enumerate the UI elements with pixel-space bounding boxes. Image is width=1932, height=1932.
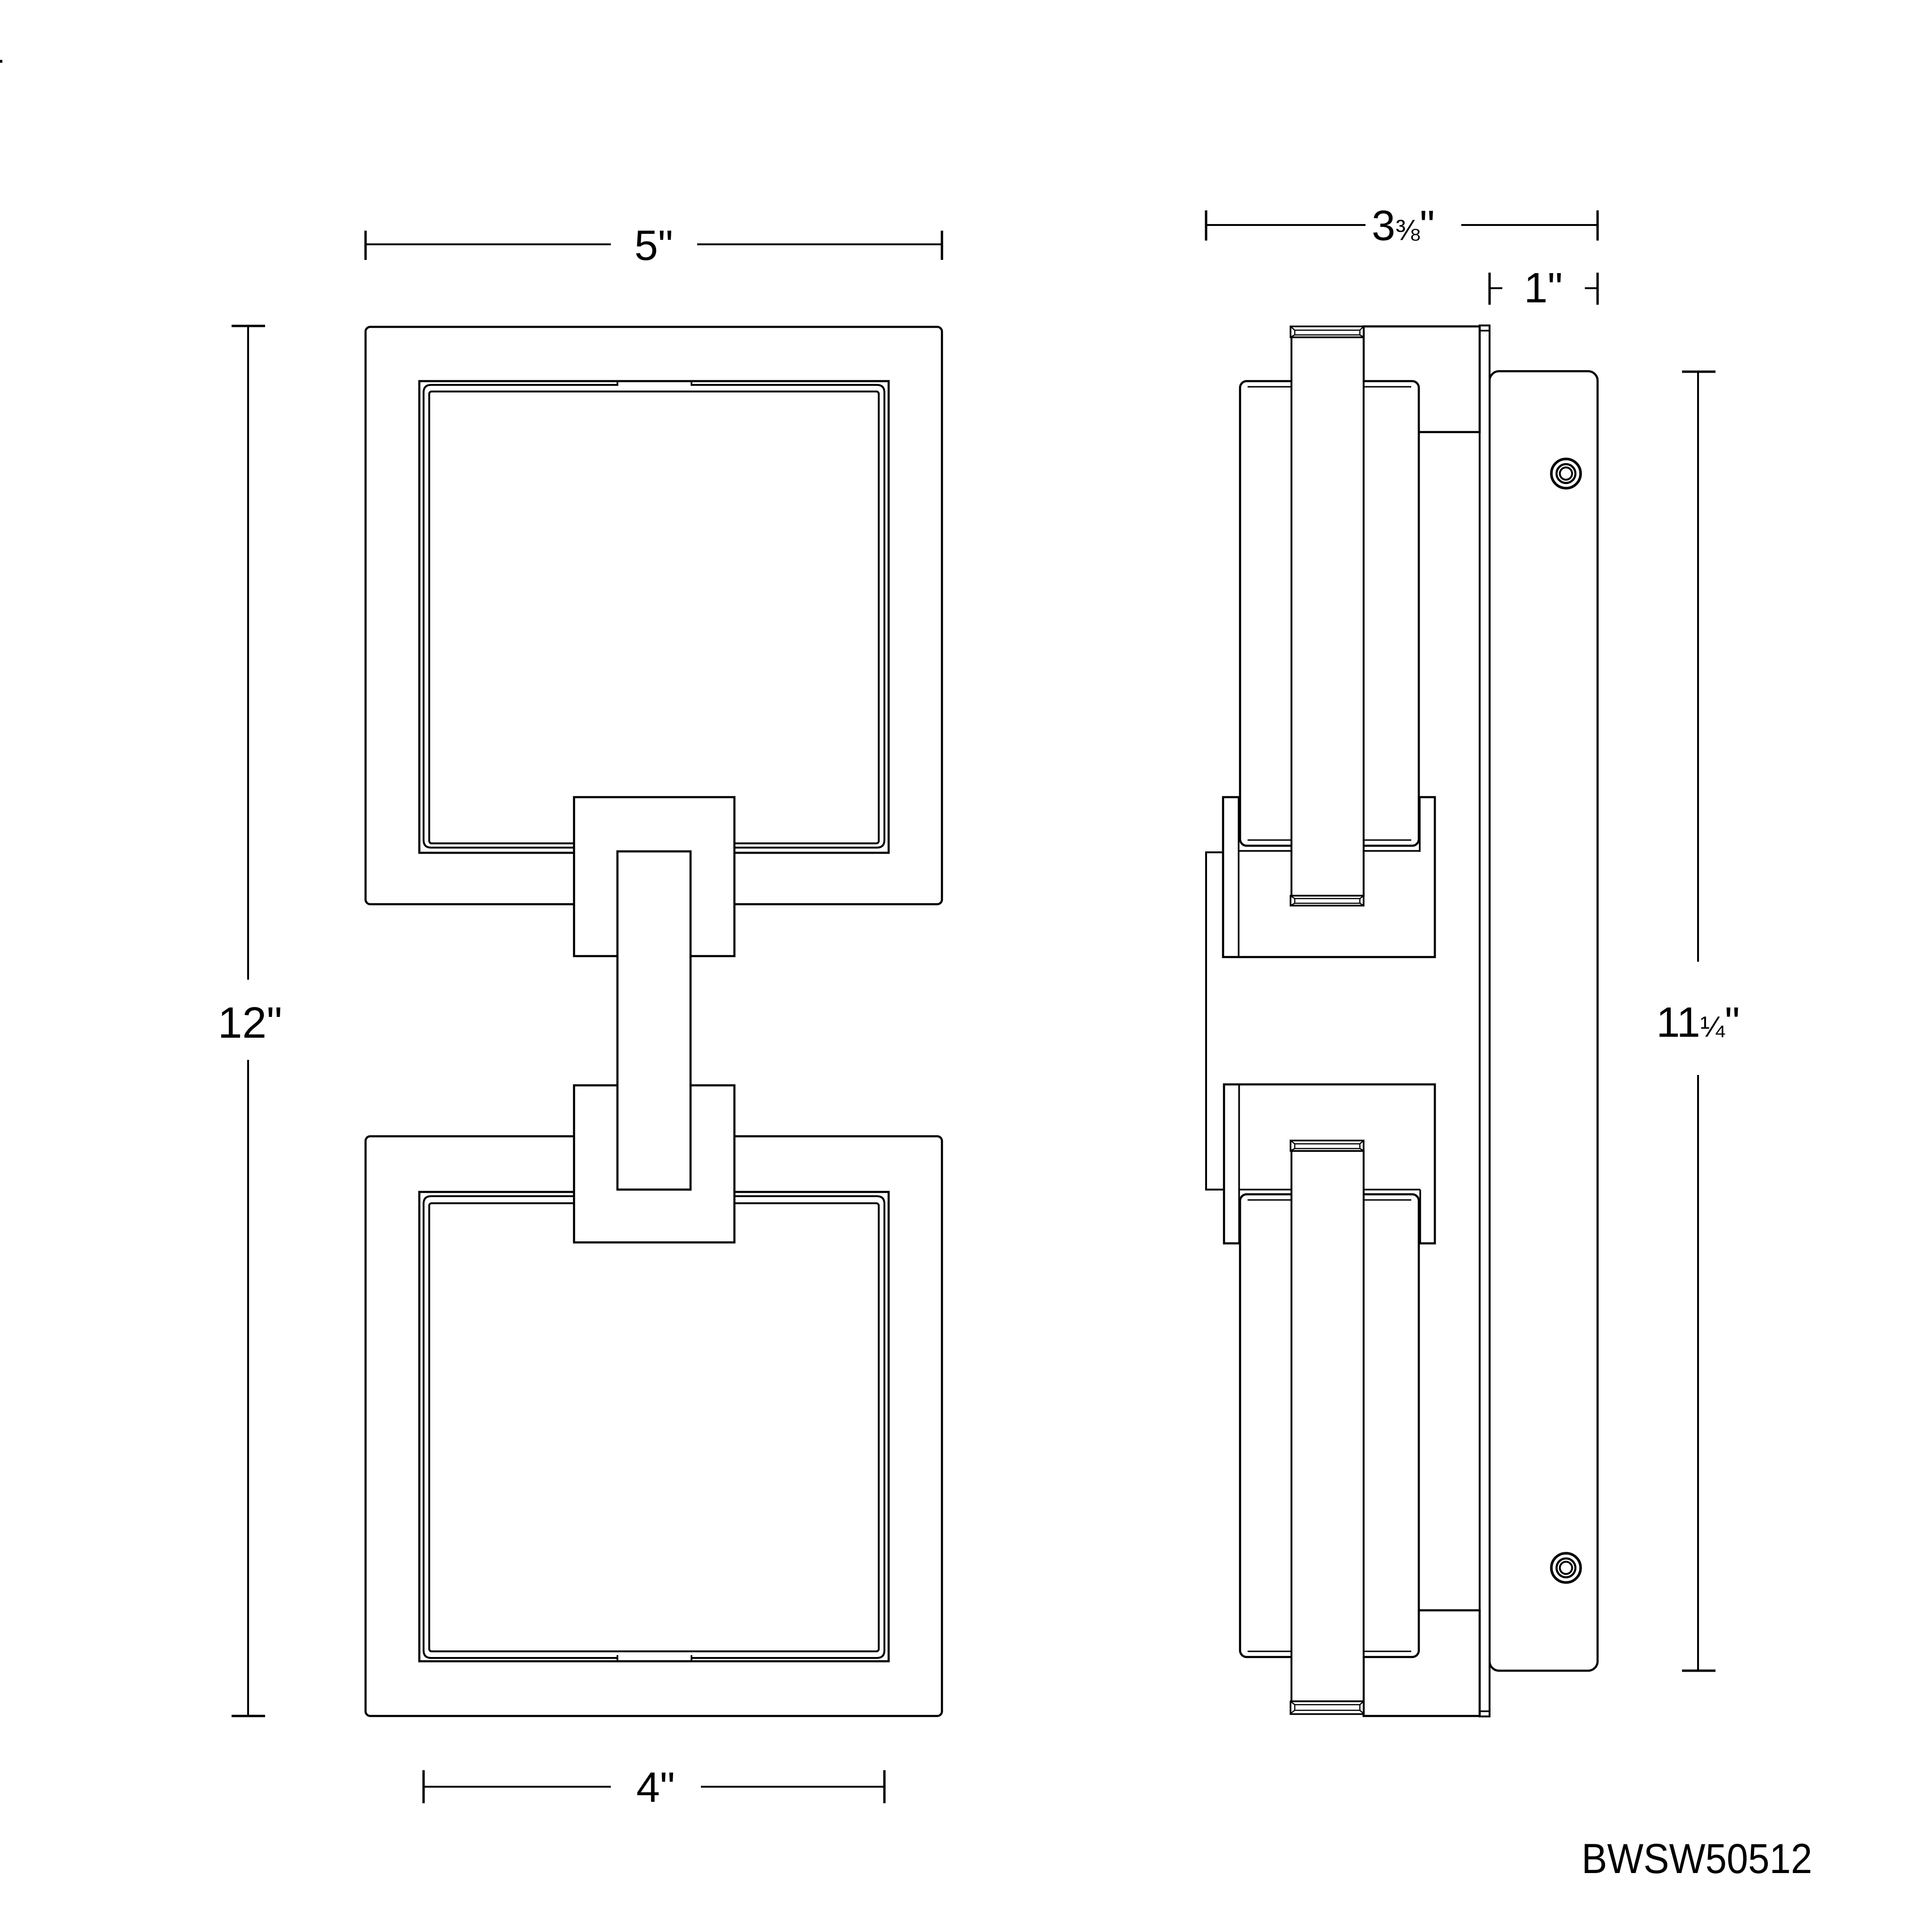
svg-text:BWSW50512: BWSW50512 [1582, 1835, 1812, 1882]
svg-text:4": 4" [636, 1764, 675, 1811]
svg-text:12": 12" [218, 998, 282, 1047]
svg-text:5": 5" [634, 222, 673, 269]
svg-text:11¼": 11¼" [1656, 999, 1740, 1046]
svg-text:1": 1" [1524, 265, 1563, 312]
